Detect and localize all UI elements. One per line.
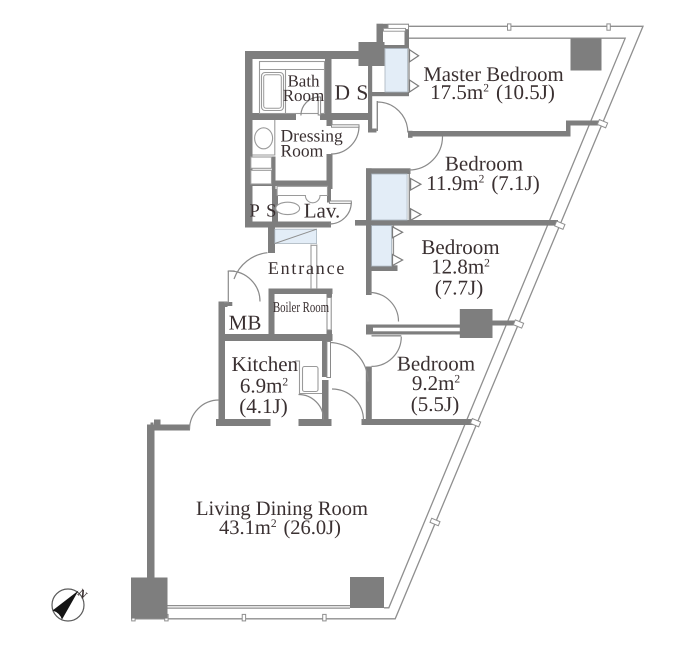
svg-text:P S: P S: [249, 201, 277, 221]
svg-text:Boiler Room: Boiler Room: [273, 300, 329, 316]
svg-text:43.1m2 (26.0J): 43.1m2 (26.0J): [219, 517, 341, 539]
svg-text:(7.7J): (7.7J): [435, 276, 483, 300]
svg-text:17.5m2 (10.5J): 17.5m2 (10.5J): [430, 80, 555, 104]
svg-text:MB: MB: [229, 310, 262, 334]
svg-text:Entrance: Entrance: [268, 258, 346, 278]
svg-text:Room: Room: [281, 141, 324, 161]
svg-text:Room: Room: [283, 86, 325, 105]
svg-text:(4.1J): (4.1J): [239, 394, 287, 418]
svg-text:Kitchen: Kitchen: [232, 352, 299, 376]
svg-text:D S: D S: [335, 80, 369, 104]
svg-text:Lav.: Lav.: [304, 199, 341, 223]
svg-text:(5.5J): (5.5J): [411, 392, 459, 416]
